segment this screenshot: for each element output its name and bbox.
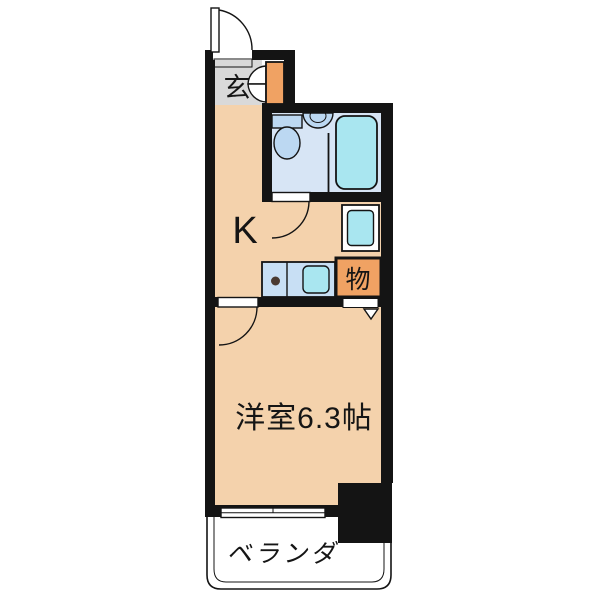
entrance-door-leaf [211,8,219,52]
wall-bath-bottom-left [262,192,272,202]
shoe-cabinet [266,62,284,104]
wall-room-top-mid [258,297,343,307]
toilet-tank [272,115,302,128]
entrance-door-swing-arc [219,10,252,50]
bathroom-door-leaf [272,193,310,202]
storage-opening [343,299,378,308]
floor-plan-drawing: 玄 K 物 洋室6.3帖 ベランダ [0,0,600,600]
wall-room-top-left [205,297,218,307]
wall-left [205,50,215,513]
pillar-block [338,483,392,543]
kitchen-sink [303,266,329,293]
storage-label: 物 [345,266,370,294]
kitchen-label: K [232,210,257,252]
western-room-label: 洋室6.3帖 [235,402,373,435]
wall-bath-bottom [310,192,393,202]
stove-burner-dot [271,277,280,286]
entrance-label: 玄 [224,73,251,103]
washing-machine-pan-inner [348,211,374,246]
toilet-bowl [274,127,300,159]
floor-plan-canvas: 玄 K 物 洋室6.3帖 ベランダ [0,0,600,600]
balcony-label: ベランダ [226,540,343,568]
room-door-leaf [218,298,258,308]
wall-bath-left [262,103,272,202]
bathtub [336,116,377,189]
wall-right [381,103,393,483]
